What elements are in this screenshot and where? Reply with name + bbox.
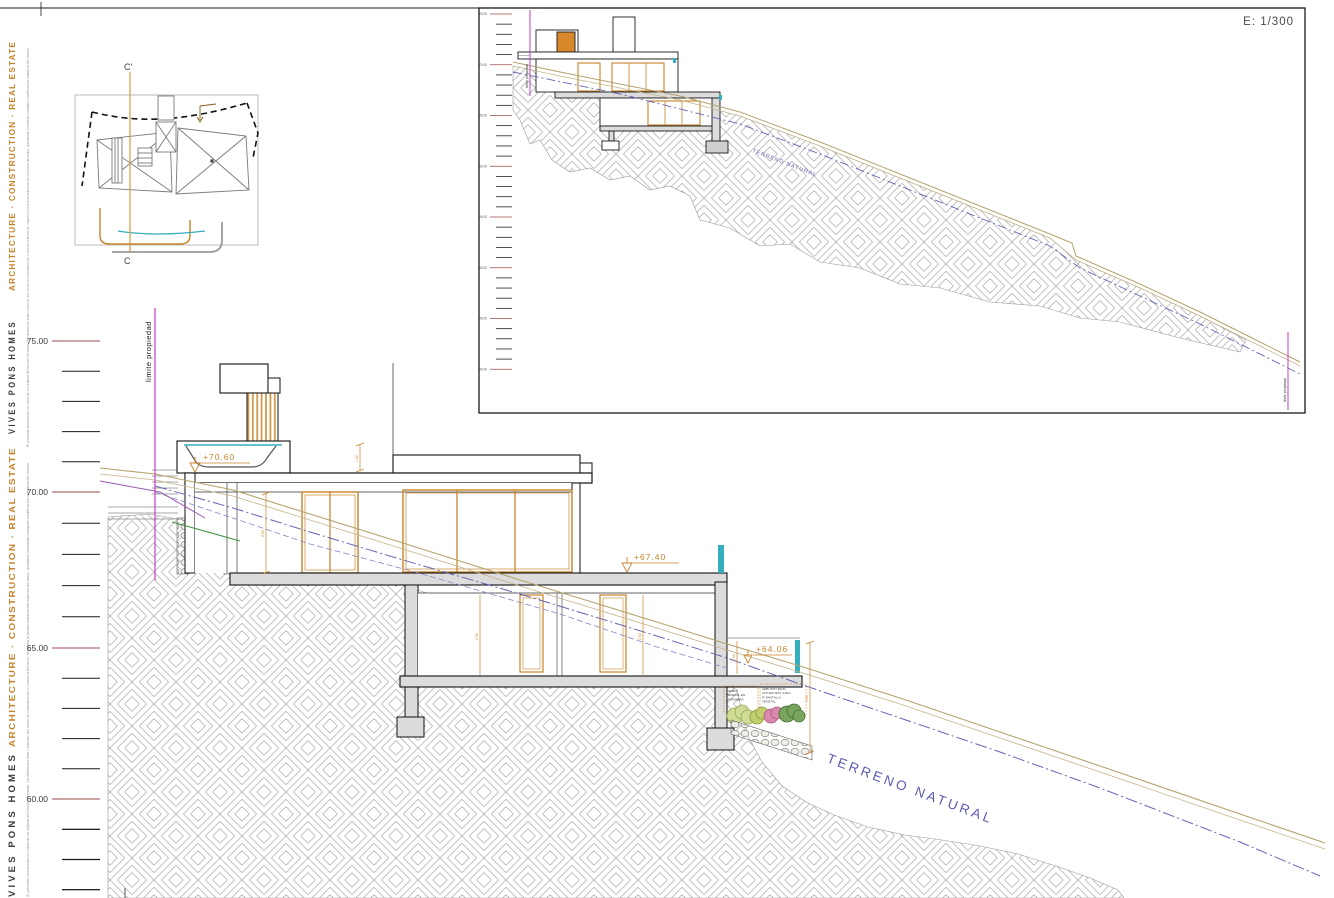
disclaimer-lower: El presente documento es copia de su ori… [26, 462, 30, 897]
elevation-scale-inset: 75.0070.0065.0060.0055.0050.0045.0040.00 [479, 12, 512, 371]
planter-notes: TIERRAVEGETAL ENJARDINERAARBUSTO BAJOALT… [726, 687, 791, 704]
footing-right [707, 728, 734, 750]
svg-text:2.60: 2.60 [638, 633, 642, 640]
lower-interior [418, 593, 715, 676]
brand-sidebar: VIVES PONS HOMES ARCHITECTURE · CONSTRUC… [7, 41, 30, 897]
retaining-steps [108, 470, 178, 519]
scale-tick-label: JARDINERA [726, 697, 744, 701]
main-terrain-label: TERRENO NATURAL [825, 751, 996, 827]
scale-tick-label: 75.00 [27, 336, 49, 346]
main-section-drawing: TIERRAVEGETAL ENJARDINERAARBUSTO BAJOALT… [100, 308, 1325, 898]
brand-tagline-lower: ARCHITECTURE · CONSTRUCTION · REAL ESTAT… [7, 447, 17, 747]
section-mark-top: C' [124, 62, 132, 72]
svg-text:1.00: 1.00 [732, 654, 736, 661]
disclaimer-upper: El presente documento es copia de su ori… [26, 47, 30, 447]
scale-tick-label: 40.00 [479, 367, 487, 371]
svg-text:2.50: 2.50 [261, 530, 265, 537]
svg-text:limite propiedad: limite propiedad [525, 64, 529, 88]
main-boundary-label: limite propiedad [144, 321, 153, 382]
scale-tick-label: 60.00 [479, 164, 487, 168]
upper-roof-step [580, 463, 592, 473]
brand-company-lower: VIVES PONS HOMES [7, 752, 17, 897]
scale-tick-label: 55.00 [479, 215, 487, 219]
brand-tagline-upper: ARCHITECTURE · CONSTRUCTION · REAL ESTAT… [7, 41, 17, 291]
svg-text:3.60: 3.60 [805, 695, 809, 702]
lower-column-left [405, 585, 418, 717]
scale-tick-label: 65.00 [27, 643, 49, 653]
inset-boundary-right: limite propiedad [1283, 332, 1288, 410]
roof-slab [185, 473, 592, 483]
svg-text:2.60: 2.60 [475, 633, 479, 640]
svg-text:1.00: 1.00 [355, 455, 359, 462]
section-inset: TERRENO NATURAL limite propiedad limite … [479, 8, 1305, 413]
scale-tick-label: 75.00 [479, 12, 487, 16]
section-mark-bottom: C [124, 256, 131, 266]
elevation-scale-main: 75.0070.0065.0060.00 [27, 336, 100, 898]
bush-green [779, 704, 805, 722]
scale-tick-label: 45.00 [479, 317, 487, 321]
scale-tick-label: 70.00 [479, 63, 487, 67]
roof-parapet [220, 364, 268, 393]
svg-text:+67.40: +67.40 [634, 552, 666, 562]
footing-left [397, 717, 424, 737]
section-drawing-canvas: VIVES PONS HOMES ARCHITECTURE · CONSTRUC… [0, 0, 1334, 898]
scale-tick-label: 60.00 [27, 794, 49, 804]
svg-text:+64.06: +64.06 [756, 644, 788, 654]
site-plan: C' C [75, 62, 258, 266]
scale-tick-label: 65.00 [479, 114, 487, 118]
lower-terrace-glass-rail [795, 640, 800, 673]
brand-company-upper: VIVES PONS HOMES [7, 320, 17, 434]
svg-text:+70.60: +70.60 [203, 452, 235, 462]
terrace-glass-rail [718, 545, 724, 573]
upper-floor-slab [230, 573, 727, 585]
inset-scale-note: E: 1/300 [1243, 16, 1294, 28]
louver-screen [247, 393, 278, 443]
level-64-06: +64.06 [744, 644, 792, 663]
drawing-sheet: VIVES PONS HOMES ARCHITECTURE · CONSTRUC… [0, 0, 1334, 898]
lower-floor-slab [400, 676, 802, 687]
svg-text:limite propiedad: limite propiedad [1283, 378, 1287, 402]
scale-tick-label: 70.00 [27, 487, 49, 497]
roof-parapet-step [268, 378, 280, 393]
upper-roof-parapet [393, 455, 580, 473]
scale-tick-label: 50.00 [479, 266, 487, 270]
level-67-40: +67.40 [622, 552, 679, 572]
scale-tick-label: VEGETAL [762, 700, 776, 704]
upper-wall-right [572, 483, 580, 573]
